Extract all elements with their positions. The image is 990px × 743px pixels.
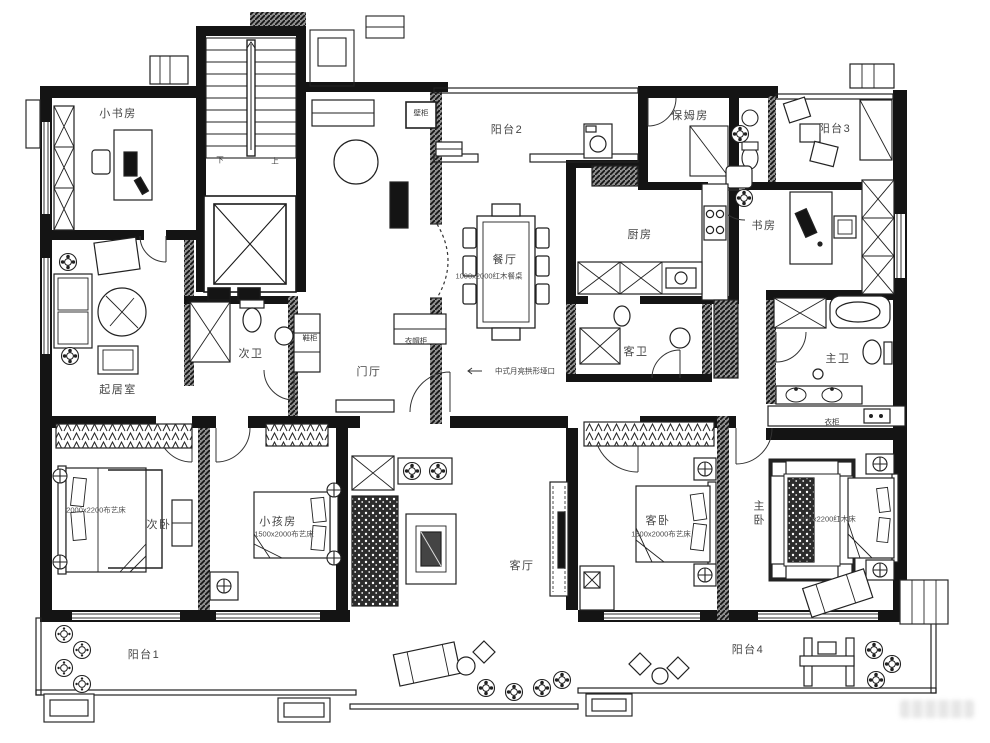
terrace-furniture bbox=[393, 641, 570, 701]
shoe-cabinet-label: 鞋柜 bbox=[303, 333, 318, 344]
room-label-master-bath: 主卫 bbox=[826, 350, 851, 366]
room-label-guest-bedroom: 客卧 bbox=[646, 512, 671, 528]
room-label-family-room: 起居室 bbox=[99, 381, 137, 397]
guest-bath-fixtures bbox=[580, 300, 738, 378]
coat-cabinet-label: 衣帽柜 bbox=[405, 336, 428, 347]
room-label-balcony1: 阳台1 bbox=[128, 646, 161, 662]
room-label-master-bedroom: 主卧 bbox=[750, 500, 766, 528]
master-bed-dimension: 1800x2200红木床 bbox=[796, 514, 856, 525]
stairs-down-label: 下 bbox=[216, 155, 224, 166]
room-label-balcony3: 阳台3 bbox=[819, 120, 852, 136]
wall-cabinet-label: 壁柜 bbox=[414, 108, 429, 119]
room-label-second-bedroom: 次卧 bbox=[147, 516, 172, 532]
stairs-up-label: 上 bbox=[271, 156, 279, 167]
exercise-machine bbox=[800, 638, 854, 686]
kids-bed-dimension: 1500x2000布艺床 bbox=[254, 529, 314, 540]
watermark bbox=[900, 700, 974, 718]
balcony2-furniture bbox=[436, 124, 612, 158]
room-label-second-bath: 次卫 bbox=[239, 345, 264, 361]
balcony4-furniture bbox=[629, 638, 901, 689]
room-label-foyer: 门厅 bbox=[357, 363, 382, 379]
small-study-furniture bbox=[54, 56, 188, 230]
second-bedroom-furniture bbox=[53, 424, 192, 574]
room-label-living-room: 客厅 bbox=[510, 557, 535, 573]
room-label-study: 书房 bbox=[752, 217, 777, 233]
master-bedroom-furniture bbox=[770, 454, 898, 617]
room-label-small-study: 小书房 bbox=[99, 105, 137, 121]
room-label-maid-room: 保姆房 bbox=[671, 107, 709, 123]
floor-plan: 小书房 阳台2 保姆房 阳台3 书房 厨房 餐厅 1000x2000红木餐桌 起… bbox=[0, 0, 990, 743]
dining-table-dimension: 1000x2000红木餐桌 bbox=[455, 271, 522, 282]
room-label-kids-room: 小孩房 bbox=[259, 513, 297, 529]
elevator bbox=[204, 196, 296, 300]
kids-room-furniture bbox=[210, 424, 341, 600]
second-bed-dimension: 2000x2200布艺床 bbox=[66, 505, 126, 516]
wardrobe-label: 衣柜 bbox=[825, 417, 840, 428]
moon-arch-label: 中式月亮拱形垭口 bbox=[495, 366, 555, 377]
guest-bed-dimension: 1500x2000布艺床 bbox=[631, 529, 691, 540]
living-room-furniture bbox=[352, 456, 568, 606]
balcony1-furniture bbox=[56, 626, 91, 693]
room-label-guest-bath: 客卫 bbox=[624, 343, 649, 359]
room-label-balcony4: 阳台4 bbox=[732, 641, 765, 657]
room-label-balcony2: 阳台2 bbox=[491, 121, 524, 137]
room-label-dining: 餐厅 bbox=[493, 251, 518, 267]
room-label-kitchen: 厨房 bbox=[628, 226, 653, 242]
family-room-furniture bbox=[54, 237, 146, 374]
